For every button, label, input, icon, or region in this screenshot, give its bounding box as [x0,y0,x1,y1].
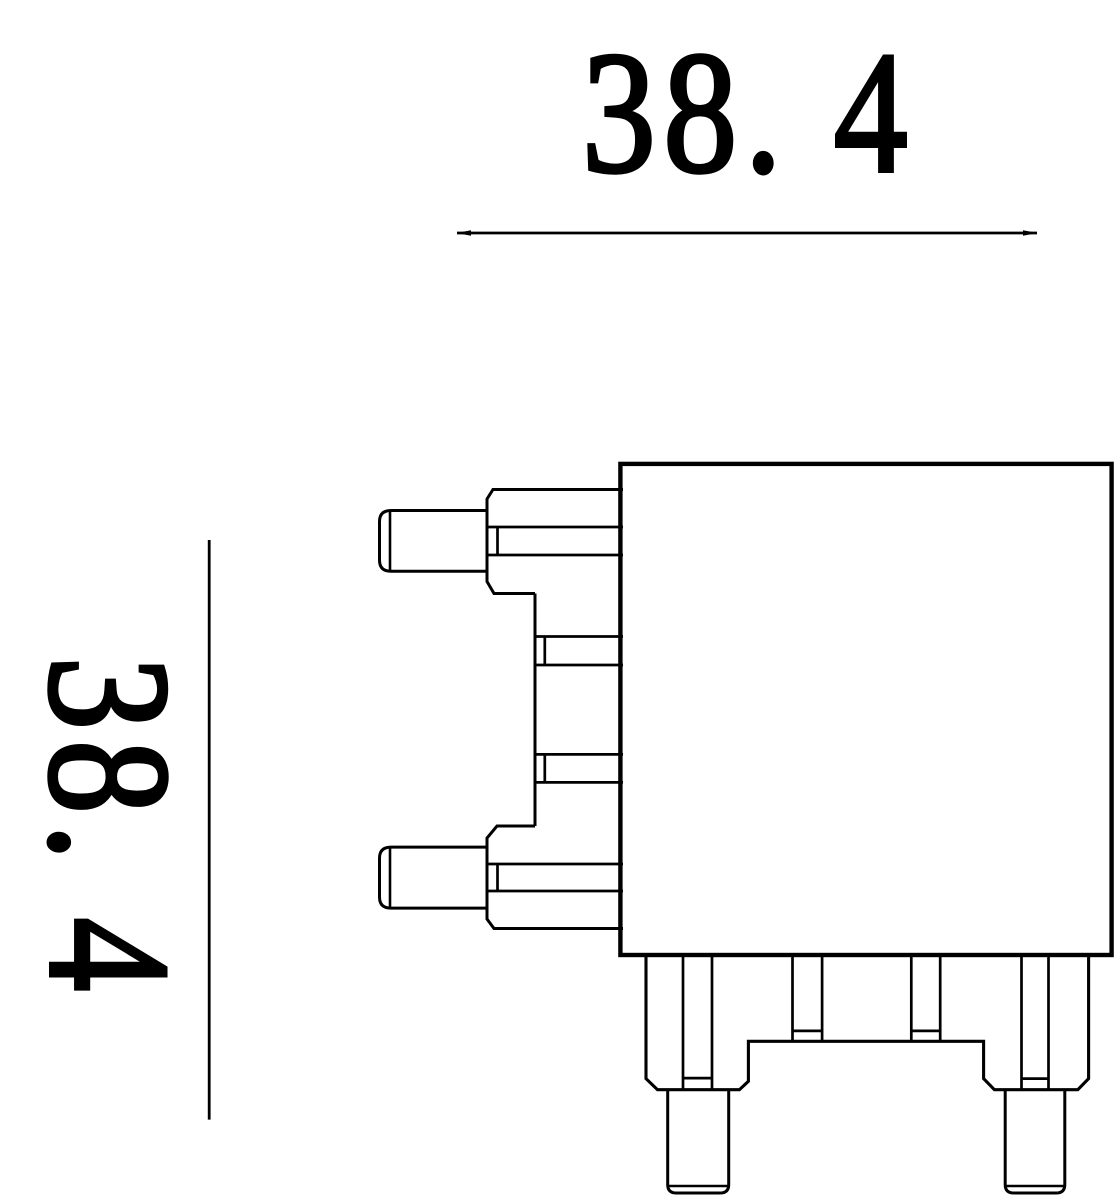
svg-text:38. 4: 38. 4 [13,656,206,1001]
svg-text:38. 4: 38. 4 [582,16,915,209]
